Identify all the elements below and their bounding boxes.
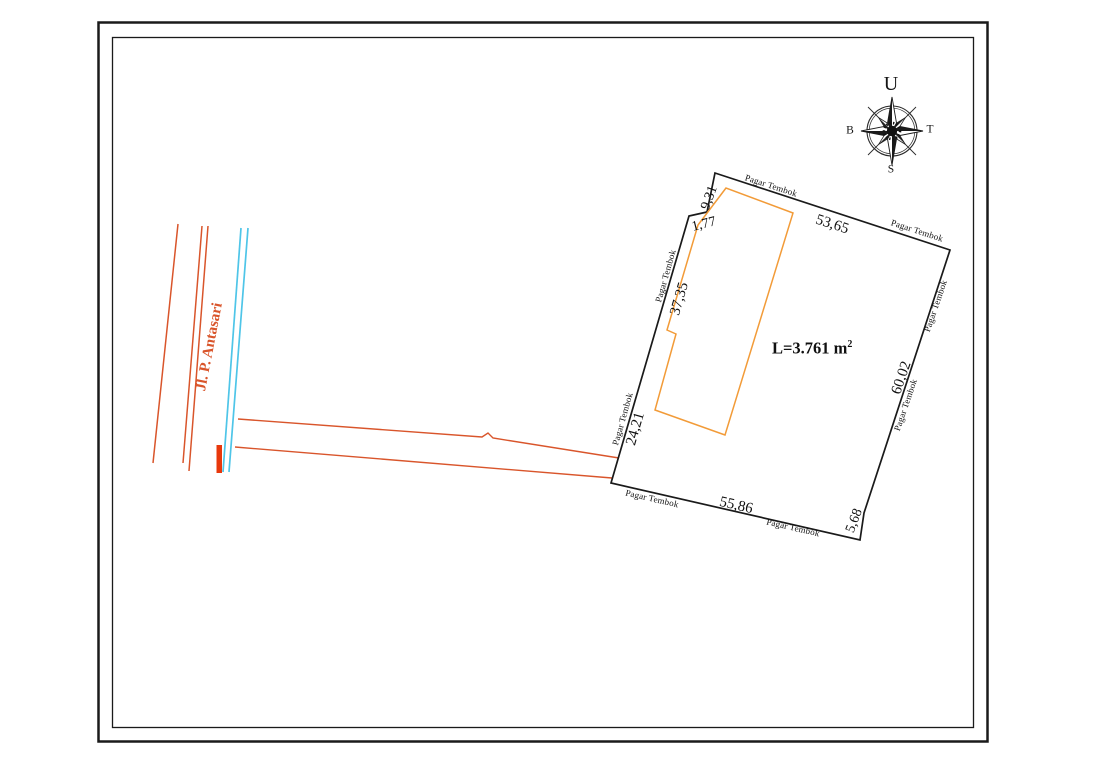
survey-sheet: U T S B Jl. P. Antasari L=3.761 m2 53,65… [0,0,1099,777]
compass-label-north: U [884,74,898,94]
gate-marker [217,445,223,473]
area-label: L=3.761 m2 [772,340,852,357]
access-road-lower-line [235,447,612,478]
inner-border-frame [113,38,974,728]
compass-rose [861,97,923,165]
site-plan-svg [0,0,1099,777]
road-edge-line-west [153,224,178,463]
compass-label-west: B [846,125,854,137]
compass-label-south: S [888,164,894,176]
area-label-text: L=3.761 m [772,339,847,358]
compass-label-east: T [926,124,933,136]
area-label-exponent: 2 [847,339,852,350]
compass-center-dot [887,126,897,136]
